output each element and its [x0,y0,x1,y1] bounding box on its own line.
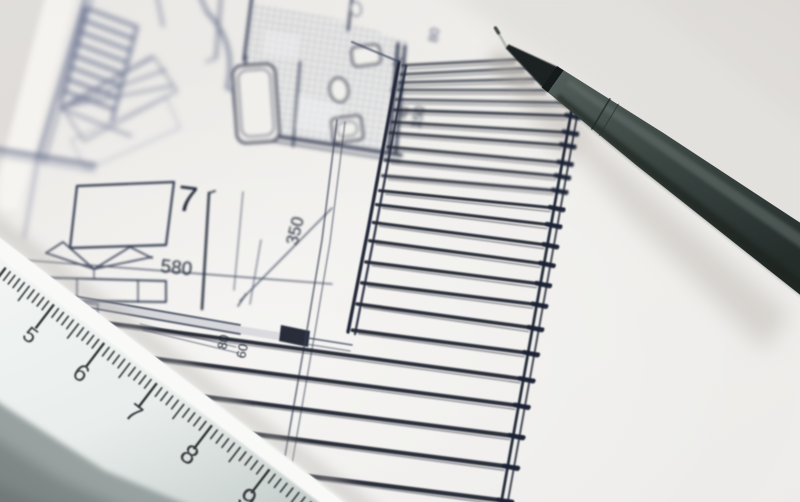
svg-text:580: 580 [159,256,193,280]
svg-text:80: 80 [425,27,442,44]
